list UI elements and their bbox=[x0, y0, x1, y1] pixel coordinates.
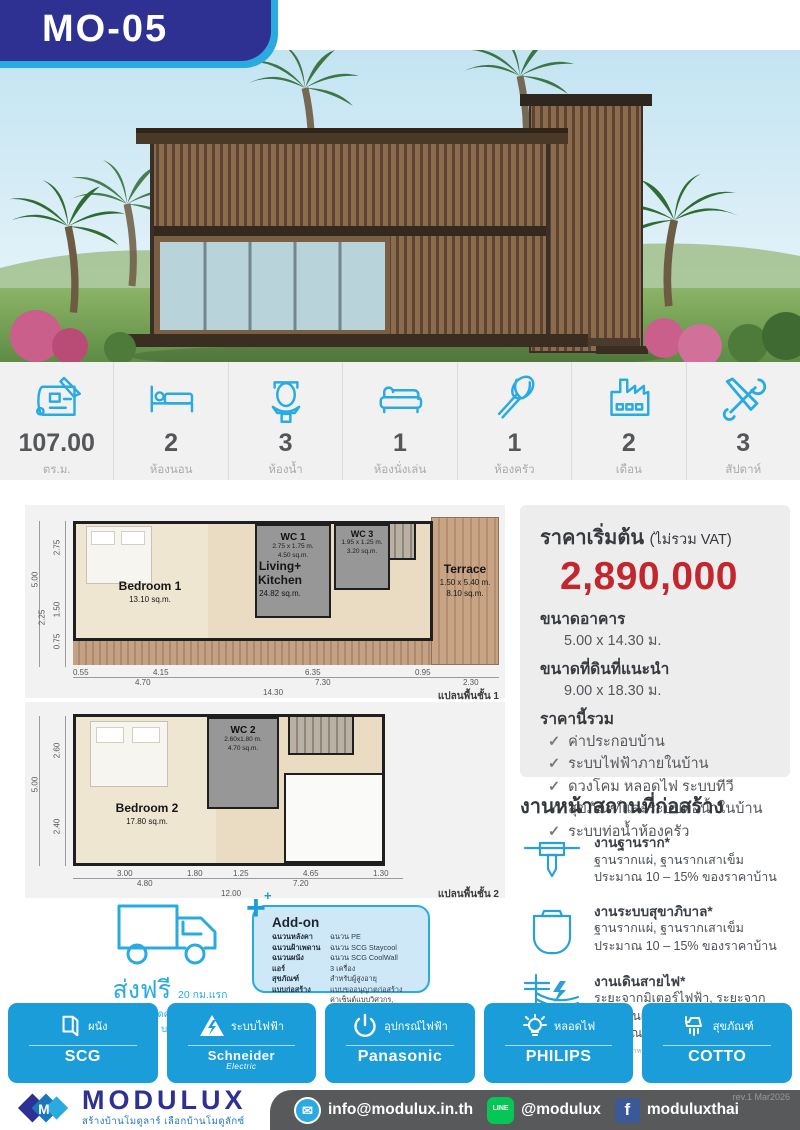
room-area: 3.20 sq.m. bbox=[336, 548, 388, 557]
tools-icon bbox=[715, 371, 771, 427]
building-size-value: 5.00 x 14.30 ม. bbox=[540, 631, 772, 652]
brand-cotto: สุขภัณฑ์ COTTO bbox=[642, 1003, 792, 1083]
dimension-line bbox=[73, 878, 403, 879]
dim-left-total: 5.00 bbox=[31, 770, 40, 800]
toilet-icon bbox=[258, 371, 314, 427]
room-area: 4.70 sq.m. bbox=[209, 745, 277, 754]
pillow-symbol bbox=[96, 727, 124, 743]
brand-category: ระบบไฟฟ้า bbox=[231, 1017, 284, 1035]
spec-value: 3 bbox=[229, 430, 342, 458]
brand-category: ผนัง bbox=[88, 1017, 107, 1035]
land-size-value: 9.00 x 18.30 ม. bbox=[540, 681, 772, 702]
dim-left: 2.25 bbox=[38, 603, 47, 633]
free-delivery-qualifier: 20 กม.แรก bbox=[178, 989, 228, 1001]
deck bbox=[73, 639, 433, 665]
addon-row: ฉนวนหลังคาฉนวน PE bbox=[272, 932, 418, 943]
model-badge-inner: MO-05 bbox=[0, 0, 271, 61]
price-card: ราคาเริ่มต้น (ไม่รวม VAT) 2,890,000 ขนาด… bbox=[520, 505, 790, 777]
check-icon bbox=[548, 731, 560, 753]
site-work-item: งานระบบสุขาภิบาล* ฐานรากแผ่, ฐานรากเสาเข… bbox=[520, 903, 794, 957]
dim-bottom: 7.30 bbox=[315, 678, 331, 687]
dim-left: 0.75 bbox=[53, 627, 62, 657]
living-kitchen-label: Living+ Kitchen 24.82 sq.m. bbox=[240, 560, 320, 599]
spec-label: ห้องนั่งเล่น bbox=[343, 461, 456, 479]
pillow-symbol bbox=[91, 531, 115, 545]
spec-label: สัปดาห์ bbox=[687, 461, 800, 479]
spec-strip: 107.00 ตร.ม. 2 ห้องนอน 3 ห้องน้ำ bbox=[0, 362, 800, 480]
dim-left: 2.60 bbox=[53, 736, 62, 766]
dim-bottom: 4.70 bbox=[135, 678, 151, 687]
dim-bottom: 1.80 bbox=[187, 869, 203, 878]
plus-icon bbox=[246, 891, 266, 925]
spec-value: 2 bbox=[114, 430, 227, 458]
dim-left: 2.40 bbox=[53, 812, 62, 842]
house-render-photo bbox=[0, 50, 800, 362]
bedroom2-label: Bedroom 2 17.80 sq.m. bbox=[97, 802, 197, 827]
dimension-line bbox=[65, 521, 66, 667]
dim-bottom: 6.35 bbox=[305, 668, 321, 677]
site-item-desc: ฐานรากแผ่, ฐานรากเสาเข็ม ประมาณ 10 – 15%… bbox=[594, 920, 777, 955]
room-size: 1.95 x 1.25 m. bbox=[336, 539, 388, 548]
bedroom1-label: Bedroom 1 13.10 sq.m. bbox=[105, 580, 195, 605]
brand-name: SCG bbox=[8, 1049, 158, 1066]
addon-row: แอร์3 เครื่อง bbox=[272, 964, 418, 975]
vat-note: (ไม่รวม VAT) bbox=[650, 532, 732, 548]
room-size: 2.60x1.80 m. bbox=[209, 736, 277, 745]
svg-text:M: M bbox=[38, 1101, 49, 1116]
shower-icon bbox=[681, 1013, 707, 1039]
line-icon bbox=[487, 1097, 514, 1124]
foundation-icon bbox=[523, 834, 581, 886]
facebook-icon bbox=[615, 1098, 640, 1123]
pillow-symbol bbox=[121, 531, 145, 545]
stairs-symbol bbox=[288, 715, 354, 755]
whisk-icon bbox=[486, 371, 542, 427]
brochure-page: MO-05 107.00 ตร.ม. 2 ห้องนอน bbox=[0, 0, 800, 1130]
spec-living-rooms: 1 ห้องนั่งเล่น bbox=[343, 362, 457, 480]
room-size: 2.75 x 1.75 m. bbox=[257, 543, 329, 552]
brand-name: COTTO bbox=[642, 1049, 792, 1066]
septic-tank-icon bbox=[526, 903, 578, 957]
wc2-room: WC 2 2.60x1.80 m. 4.70 sq.m. bbox=[207, 717, 279, 809]
room-name: WC 3 bbox=[336, 529, 388, 539]
bed-symbol bbox=[90, 721, 168, 787]
spec-label: ตร.ม. bbox=[0, 461, 113, 479]
terrace-label: Terrace 1.50 x 5.40 m. 8.10 sq.m. bbox=[429, 563, 501, 599]
check-icon bbox=[548, 753, 560, 775]
price-title: ราคาเริ่มต้น (ไม่รวม VAT) bbox=[540, 521, 772, 553]
spec-value: 3 bbox=[687, 430, 800, 458]
spec-bathrooms: 3 ห้องน้ำ bbox=[229, 362, 343, 480]
dim-bottom: 3.00 bbox=[117, 869, 133, 878]
dim-bottom: 4.15 bbox=[153, 668, 169, 677]
site-work-item: งานฐานราก* ฐานรากแผ่, ฐานรากเสาเข็ม ประม… bbox=[520, 834, 794, 887]
truck-icon bbox=[111, 900, 229, 972]
wc3-room: WC 3 1.95 x 1.25 m. 3.20 sq.m. bbox=[334, 524, 390, 590]
blueprint-icon bbox=[29, 371, 85, 427]
dim-bottom: 7.20 bbox=[293, 879, 309, 888]
include-item: ระบบไฟฟ้าภายในบ้าน bbox=[540, 753, 772, 775]
spec-bedrooms: 2 ห้องนอน bbox=[114, 362, 228, 480]
spec-label: เดือน bbox=[572, 461, 685, 479]
dim-left-total: 5.00 bbox=[31, 565, 40, 595]
includes-label: ราคานี้รวม bbox=[540, 706, 772, 731]
spec-kitchens: 1 ห้องครัว bbox=[458, 362, 572, 480]
floorplan-level1: 5.00 2.75 1.50 2.25 0.75 WC 1 2.75 x 1.7… bbox=[25, 505, 505, 698]
addon-title: Add-on bbox=[272, 915, 418, 930]
wall-icon bbox=[58, 1013, 82, 1039]
line-contact[interactable]: @modulux bbox=[487, 1097, 601, 1124]
dim-bottom: 4.65 bbox=[303, 869, 319, 878]
brand-name: Schneider Electric bbox=[167, 1049, 317, 1071]
pillow-symbol bbox=[132, 727, 160, 743]
dim-bottom: 0.95 bbox=[415, 668, 431, 677]
spec-label: ห้องครัว bbox=[458, 461, 571, 479]
spec-months: 2 เดือน bbox=[572, 362, 686, 480]
include-item: ค่าประกอบบ้าน bbox=[540, 731, 772, 753]
dim-bottom: 1.25 bbox=[233, 869, 249, 878]
site-item-title: งานเดินสายไฟ* bbox=[594, 973, 766, 991]
electric-hazard-icon bbox=[199, 1013, 225, 1039]
spec-value: 2 bbox=[572, 430, 685, 458]
site-item-desc: ฐานรากแผ่, ฐานรากเสาเข็ม ประมาณ 10 – 15%… bbox=[594, 852, 777, 887]
building-size-label: ขนาดอาคาร bbox=[540, 606, 772, 631]
bed-icon bbox=[143, 371, 199, 427]
spec-weeks: 3 สัปดาห์ bbox=[687, 362, 800, 480]
brand-philips: หลอดไฟ PHILIPS bbox=[484, 1003, 634, 1083]
price-amount: 2,890,000 bbox=[540, 553, 772, 602]
room-name: WC 1 bbox=[257, 532, 329, 543]
addon-row: สุขภัณฑ์สำหรับผู้สูงอายุ bbox=[272, 974, 418, 985]
addon-row: ฉนวนผนังฉนวน SCG CoolWall bbox=[272, 953, 418, 964]
floorplan-level2: 5.00 2.60 2.40 WC 2 2.60x1.80 m. 4.70 sq… bbox=[25, 702, 505, 898]
house-scene-illustration bbox=[0, 50, 800, 362]
brand-category: อุปกรณ์ไฟฟ้า bbox=[384, 1017, 448, 1035]
brand-wordmark: MODULUX bbox=[82, 1086, 247, 1114]
model-code: MO-05 bbox=[0, 0, 271, 58]
brand-partners-row: ผนัง SCG ระบบไฟฟ้า Schneider Electric bbox=[8, 1003, 792, 1083]
site-item-title: งานระบบสุขาภิบาล* bbox=[594, 903, 777, 921]
spec-label: ห้องนอน bbox=[114, 461, 227, 479]
brand-scg: ผนัง SCG bbox=[8, 1003, 158, 1083]
brand-name: PHILIPS bbox=[484, 1049, 634, 1066]
dim-bottom: 2.30 bbox=[463, 678, 479, 687]
spec-label: ห้องน้ำ bbox=[229, 461, 342, 479]
spec-value: 1 bbox=[343, 430, 456, 458]
brand-panasonic: อุปกรณ์ไฟฟ้า Panasonic bbox=[325, 1003, 475, 1083]
site-item-title: งานฐานราก* bbox=[594, 834, 777, 852]
sofa-icon bbox=[372, 371, 428, 427]
addon-box: Add-on ฉนวนหลังคาฉนวน PE ฉนวนฝ้าเพดานฉนว… bbox=[252, 905, 430, 993]
brand-schneider: ระบบไฟฟ้า Schneider Electric bbox=[167, 1003, 317, 1083]
revision-label: rev.1 Mar2026 bbox=[733, 1092, 790, 1102]
site-work-title: งานหน้าสถานที่ก่อสร้าง bbox=[520, 790, 794, 822]
open-to-below bbox=[284, 773, 384, 863]
factory-icon bbox=[601, 371, 657, 427]
brand-category: หลอดไฟ bbox=[554, 1017, 595, 1035]
spec-value: 1 bbox=[458, 430, 571, 458]
modulux-logo-icon: M bbox=[16, 1088, 74, 1128]
dim-left: 2.75 bbox=[53, 533, 62, 563]
free-delivery-title: ส่งฟรี 20 กม.แรก bbox=[95, 977, 245, 1005]
dimension-line bbox=[65, 716, 66, 866]
dim-bottom: 4.80 bbox=[137, 879, 153, 888]
dim-bottom: 1.30 bbox=[373, 869, 389, 878]
modulux-logo-block: M MODULUX สร้างบ้านโมดูลาร์ เลือกบ้านโมด… bbox=[16, 1086, 247, 1129]
dim-left: 1.50 bbox=[53, 595, 62, 625]
power-icon bbox=[352, 1013, 378, 1039]
spec-area: 107.00 ตร.ม. bbox=[0, 362, 114, 480]
spec-value: 107.00 bbox=[0, 430, 113, 458]
brand-category: สุขภัณฑ์ bbox=[713, 1017, 754, 1035]
model-badge: MO-05 bbox=[0, 0, 278, 68]
land-size-label: ขนาดที่ดินที่แนะนำ bbox=[540, 656, 772, 681]
room-name: WC 2 bbox=[209, 725, 277, 736]
email-contact[interactable]: info@modulux.in.th bbox=[294, 1097, 473, 1124]
facebook-contact[interactable]: moduluxthai bbox=[615, 1098, 739, 1123]
brand-tagline: สร้างบ้านโมดูลาร์ เลือกบ้านโมดูลักซ์ bbox=[82, 1114, 247, 1129]
dim-bottom-total: 12.00 bbox=[221, 889, 241, 898]
brand-name: Panasonic bbox=[325, 1049, 475, 1066]
addon-row: ฉนวนฝ้าเพดานฉนวน SCG Staycool bbox=[272, 943, 418, 954]
bed-symbol bbox=[86, 526, 152, 584]
footer-contact-bar: rev.1 Mar2026 info@modulux.in.th @modulu… bbox=[270, 1090, 800, 1130]
dim-bottom-total: 14.30 bbox=[263, 688, 283, 697]
floorplan2-caption: แปลนพื้นชั้น 2 bbox=[438, 887, 499, 902]
dim-bottom: 0.55 bbox=[73, 668, 89, 677]
email-icon bbox=[294, 1097, 321, 1124]
bulb-icon bbox=[522, 1013, 548, 1039]
